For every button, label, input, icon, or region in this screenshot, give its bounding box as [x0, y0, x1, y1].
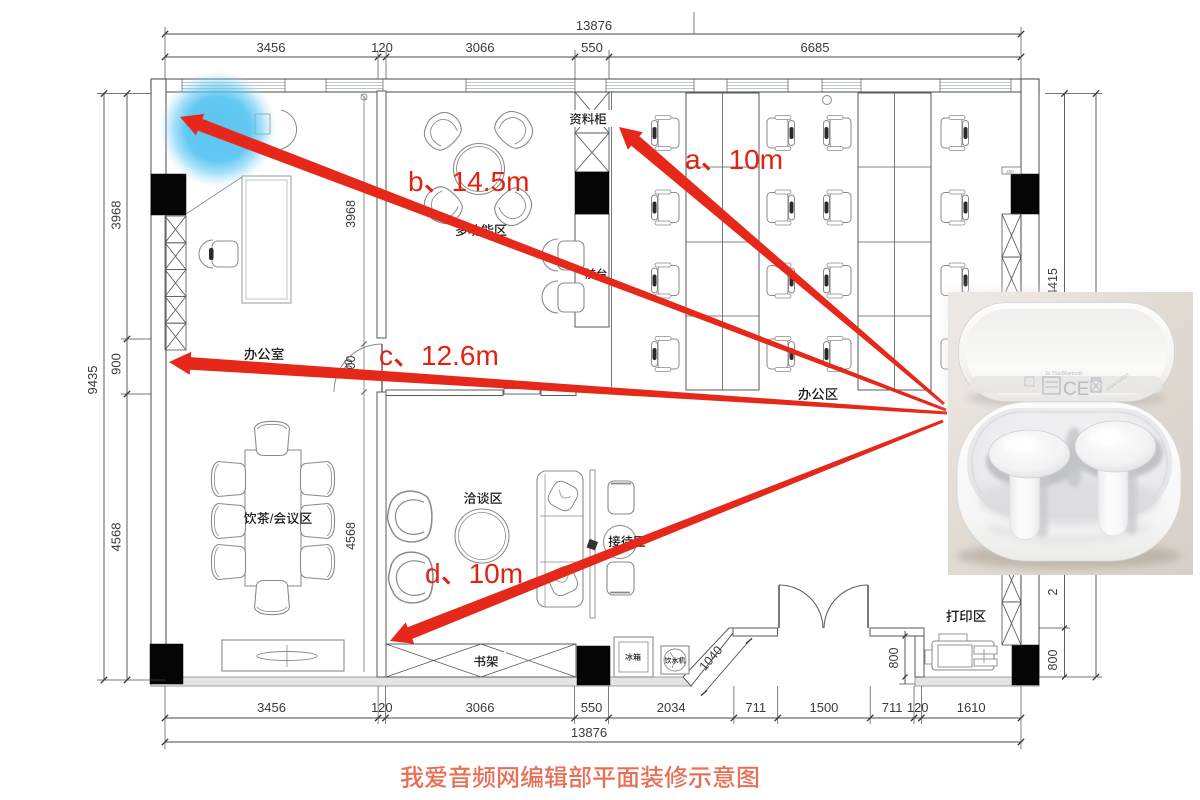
svg-text:400: 400 [1006, 169, 1014, 174]
svg-text:711: 711 [745, 700, 766, 715]
svg-text:3456: 3456 [257, 40, 286, 55]
svg-text:/: / [270, 511, 274, 526]
svg-text:3066: 3066 [466, 40, 495, 55]
svg-text:10m: 10m [469, 558, 523, 589]
svg-text:d: d [425, 558, 441, 589]
svg-text:3066: 3066 [466, 700, 495, 715]
svg-text:9435: 9435 [85, 366, 100, 395]
svg-text:a: a [685, 144, 701, 175]
svg-text:CE: CE [1063, 379, 1089, 400]
svg-text:800: 800 [887, 648, 901, 669]
svg-text:550: 550 [581, 700, 603, 715]
svg-text:2034: 2034 [657, 700, 686, 715]
svg-text:12.6m: 12.6m [421, 340, 499, 371]
svg-text:1500: 1500 [809, 700, 838, 715]
svg-text:b: b [408, 166, 424, 197]
svg-text:120: 120 [907, 700, 929, 715]
svg-text:4415: 4415 [1046, 268, 1060, 296]
svg-text:c: c [379, 340, 393, 371]
svg-text:3968: 3968 [109, 201, 124, 230]
svg-text:3968: 3968 [344, 200, 358, 228]
svg-text:3s TrueBluetooth: 3s TrueBluetooth [1045, 371, 1083, 377]
svg-text:550: 550 [581, 40, 603, 55]
svg-text:711: 711 [882, 700, 903, 715]
svg-text:13876: 13876 [571, 725, 607, 740]
svg-text:13876: 13876 [576, 18, 612, 33]
svg-text:2: 2 [1046, 588, 1060, 595]
svg-text:1610: 1610 [957, 700, 986, 715]
svg-text:120: 120 [371, 700, 393, 715]
svg-text:3456: 3456 [257, 700, 286, 715]
svg-text:900: 900 [109, 353, 124, 375]
svg-text:6685: 6685 [801, 40, 830, 55]
svg-text:120: 120 [371, 40, 393, 55]
svg-text:14.5m: 14.5m [452, 166, 530, 197]
svg-text:4568: 4568 [109, 523, 124, 552]
svg-text:10m: 10m [729, 144, 783, 175]
svg-text:800: 800 [1046, 650, 1060, 671]
svg-text:4568: 4568 [344, 522, 358, 550]
